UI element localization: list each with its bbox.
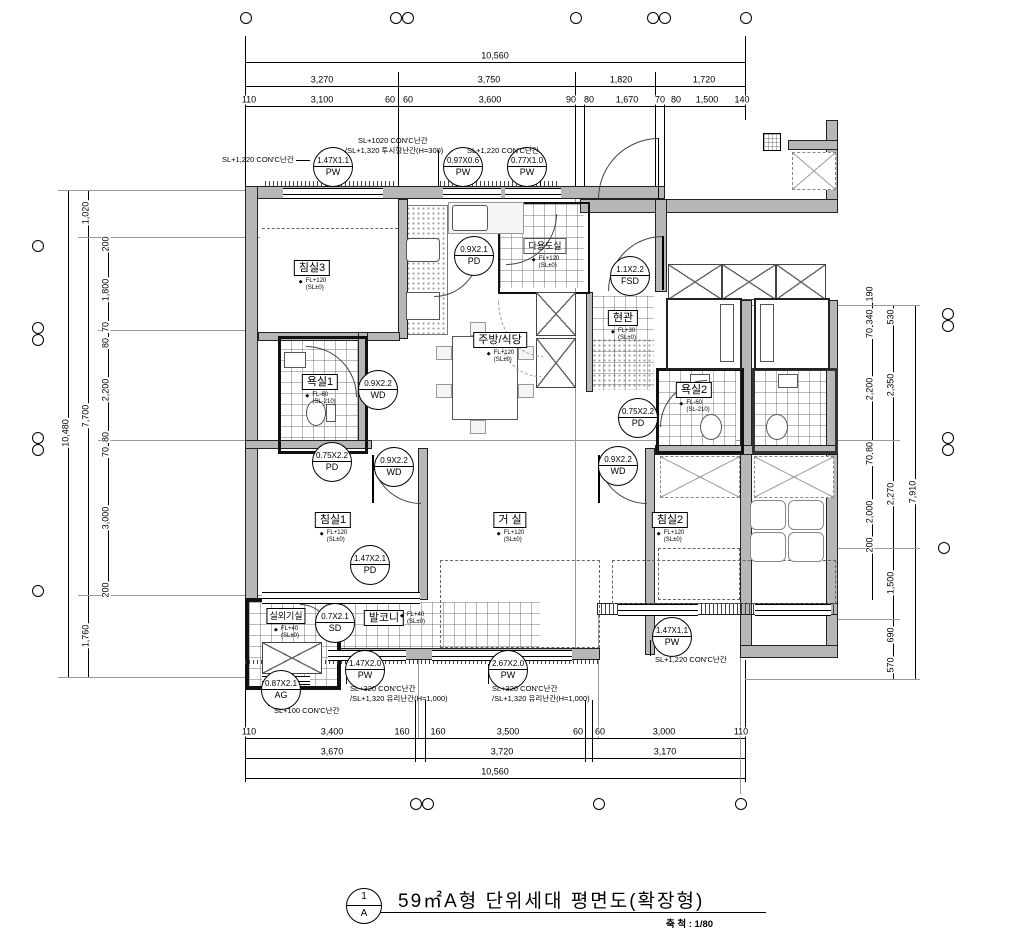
dim-text: 3,170: [653, 748, 678, 757]
wall-closet-entry: [586, 292, 593, 392]
dim-text: 60: [402, 96, 414, 105]
grid-bubble: [402, 12, 414, 24]
sofa-block: [750, 500, 786, 530]
tag-size: 0.9X2.1: [455, 245, 493, 256]
grid-bubble: [659, 12, 671, 24]
grid-bubble: [32, 334, 44, 346]
basin: [284, 352, 306, 368]
grid-bubble: [32, 432, 44, 444]
window-top-right: [505, 188, 561, 199]
tag-pw-bed2: 1.47X1.1PW: [652, 617, 692, 657]
room-label-bed1: 침실1: [315, 512, 351, 528]
level-l2: (SL±0): [494, 357, 515, 364]
tag-code: PD: [351, 565, 389, 576]
dim-text: 1,670: [615, 96, 640, 105]
tag-pd-bed1: 1.47X2.1PD: [350, 545, 390, 585]
note-railing: SL+320 CON'C난간: [350, 684, 415, 693]
tag-size: 0.97X0.6: [444, 156, 482, 167]
grid-bubble: [390, 12, 402, 24]
washer: [452, 205, 488, 231]
door-band-bed1: [262, 592, 420, 604]
dim-text: 2,200: [866, 377, 875, 402]
dim-ext: [745, 679, 920, 680]
tag-size: 0.9X2.2: [375, 456, 413, 467]
window-utility: [443, 188, 501, 199]
note-railing: SL+1,220 CON'C난간: [467, 146, 539, 155]
note-railing: SL+1,220 CON'C난간: [655, 655, 727, 664]
tag-code: PW: [489, 670, 527, 681]
closet: [722, 264, 776, 300]
wardrobe: [660, 456, 740, 498]
grid-bubble: [593, 798, 605, 810]
sofa-block: [788, 532, 824, 562]
level-l2: (SL±0): [306, 285, 327, 292]
wardrobe: [754, 456, 834, 498]
dim-ext: [425, 700, 426, 762]
room-label-living: 거 실: [493, 512, 526, 528]
window-annex: [755, 604, 831, 616]
level-l2: (SL-210): [312, 399, 335, 406]
room-label-bed2: 침실2: [652, 512, 688, 528]
room-level: FL-60(SL-210): [312, 392, 335, 405]
tag-code: AG: [262, 690, 300, 701]
note-leader: [296, 160, 310, 161]
detail-number: 1: [347, 889, 381, 906]
note-leader: [438, 150, 439, 186]
tag-size: 0.75X2.2: [313, 451, 351, 462]
wall-corridor: [580, 199, 838, 213]
dim-line: [245, 106, 745, 107]
dim-line: [88, 190, 89, 677]
dim-text: 2,200: [102, 378, 111, 403]
dim-text: 3,400: [320, 728, 345, 737]
note-railing: /SL+1,320 유리난간(H=1,000): [350, 694, 448, 703]
tag-size: 2.67X2.0: [489, 659, 527, 670]
tag-size: 1.47X1.1: [314, 156, 352, 167]
tag-size: 0.75X2.2: [619, 407, 657, 418]
room-label-entry: 현관: [608, 310, 638, 326]
level-l1: FL+40: [281, 626, 299, 633]
room-label-balcony: 발코니: [364, 610, 404, 626]
tag-fsd-entrance: 1.1X2.2FSD: [610, 256, 650, 296]
dim-text: 80: [102, 431, 111, 443]
chair: [436, 346, 452, 360]
dim-text: 1,720: [692, 76, 717, 85]
tag-size: 1.1X2.2: [611, 265, 649, 276]
dim-text: 200: [102, 581, 111, 598]
chair: [518, 384, 534, 398]
extension-line-living: [440, 560, 600, 648]
level-l1: FL+30: [618, 328, 636, 335]
window-bed3: [283, 188, 383, 199]
dim-ext: [592, 700, 593, 762]
dim-ext: [98, 440, 248, 441]
dim-text: 160: [393, 728, 410, 737]
closet: [776, 264, 826, 300]
dim-text: 60: [384, 96, 396, 105]
dim-line: [245, 738, 745, 739]
grid-bubble: [32, 585, 44, 597]
tag-code: WD: [359, 390, 397, 401]
grid-bubble: [735, 798, 747, 810]
room-label-bath2: 욕실2: [676, 382, 712, 398]
grid-bubble: [938, 542, 950, 554]
wall-corner: [788, 140, 838, 150]
door-leaf: [658, 138, 659, 200]
level-l1: FL+120: [504, 530, 525, 537]
level-l2: (SL±0): [539, 263, 560, 270]
grid-bubble: [32, 444, 44, 456]
dim-text: 3,750: [477, 76, 502, 85]
room-level: FL+120(SL±0): [664, 530, 685, 543]
note-railing: /SL+1,320 투시형난간(H=300): [345, 146, 443, 155]
tag-code: PD: [619, 418, 657, 429]
tag-wd-bed2: 0.9X2.2WD: [598, 446, 638, 486]
tag-wd-left: 0.9X2.2WD: [374, 447, 414, 487]
room-level: FL+120(SL±0): [494, 350, 515, 363]
level-l2: (SL±0): [618, 335, 636, 342]
grid-bubble: [647, 12, 659, 24]
tag-size: 0.87X2.1: [262, 679, 300, 690]
dim-text: 3,670: [320, 748, 345, 757]
room-label-kitchen: 주방/식당: [473, 332, 527, 348]
shaft: [763, 133, 781, 151]
closet: [668, 264, 722, 300]
dim-ext: [415, 700, 416, 762]
dim-text: 1,800: [102, 278, 111, 303]
dim-text: 690: [887, 626, 896, 643]
grid-bubble: [942, 308, 954, 320]
title-block: 1 A 59㎡A형 단위세대 평면도(확장형) 축 척 : 1/80: [346, 886, 766, 936]
tag-code: PW: [346, 670, 384, 681]
grid-bubble: [410, 798, 422, 810]
grid-bubble: [240, 12, 252, 24]
grid-bubble: [422, 798, 434, 810]
grid-bubble: [740, 12, 752, 24]
tag-size: 1.47X2.0: [346, 659, 384, 670]
level-l1: FL+120: [664, 530, 685, 537]
basin: [778, 374, 798, 388]
detail-sheet: A: [347, 906, 381, 921]
level-l2: (SL-210): [686, 407, 709, 414]
room-level: FL+120(SL±0): [306, 278, 327, 291]
tag-code: WD: [375, 467, 413, 478]
dim-text: 70: [866, 454, 875, 466]
extension-line-annex: [612, 560, 836, 604]
ac-unit: [262, 642, 322, 674]
level-l2: (SL±0): [327, 537, 348, 544]
tag-ag: 0.87X2.1AG: [261, 670, 301, 710]
level-l2: (SL±0): [281, 633, 299, 640]
title-underline: [380, 912, 766, 913]
room-label-bed3: 침실3: [294, 260, 330, 276]
dim-text: 3,500: [496, 728, 521, 737]
room-level: FL+30(SL±0): [618, 328, 636, 341]
bed-pillow: [760, 304, 774, 362]
dim-text: 3,600: [478, 96, 503, 105]
dim-text: 3,720: [490, 748, 515, 757]
toilet-tank: [326, 404, 336, 422]
dim-text: 60: [594, 728, 606, 737]
level-l2: (SL±0): [504, 537, 525, 544]
dim-ext: [664, 96, 665, 199]
note-leader: [650, 640, 651, 656]
tag-size: 1.47X2.1: [351, 554, 389, 565]
dim-text: 80: [670, 96, 682, 105]
dim-text: 160: [429, 728, 446, 737]
sofa-block: [788, 500, 824, 530]
tag-size: 0.7X2.1: [316, 612, 354, 623]
chair: [470, 420, 486, 434]
tag-code: PD: [455, 256, 493, 267]
wall-annex-bottom: [740, 645, 838, 658]
closet-dashed: [792, 152, 836, 190]
room-level: FL+120(SL±0): [539, 256, 560, 269]
dim-ext: [398, 72, 399, 186]
dim-text: 10,560: [480, 768, 510, 777]
dim-ext: [98, 330, 248, 331]
grid-bubble: [942, 444, 954, 456]
dim-ext: [838, 619, 900, 620]
dim-ext: [58, 190, 248, 191]
grid-bubble: [570, 12, 582, 24]
dim-text: 1,020: [82, 201, 91, 226]
tag-size: 0.9X2.2: [599, 455, 637, 466]
dim-ext: [585, 700, 586, 762]
level-l1: FL+120: [306, 278, 327, 285]
tag-code: PW: [444, 167, 482, 178]
dim-text: 80: [866, 441, 875, 453]
grid-bubble: [32, 240, 44, 252]
dim-text: 3,270: [310, 76, 335, 85]
dim-text: 190: [866, 285, 875, 302]
wall-left: [245, 186, 258, 600]
room-level: FL+40(SL±0): [407, 612, 425, 625]
dim-ext: [838, 548, 920, 549]
dim-ext: [745, 36, 746, 120]
floor-plan-sheet: 10,560 3,270 3,750 1,820 1,720 110 3,100…: [0, 0, 1022, 945]
level-l1: FL+120: [494, 350, 515, 357]
chair: [436, 384, 452, 398]
dim-text: 90: [565, 96, 577, 105]
dim-text: 570: [887, 656, 896, 673]
dim-text: 110: [241, 728, 257, 737]
detail-bubble: 1 A: [346, 888, 382, 924]
dim-line: [245, 62, 745, 63]
door-leaf: [662, 236, 664, 290]
dim-text: 200: [102, 235, 111, 252]
dim-text: 7,700: [82, 404, 91, 429]
drawing-scale: 축 척 : 1/80: [666, 916, 713, 930]
dim-text: 3,000: [652, 728, 677, 737]
dim-text: 1,820: [609, 76, 634, 85]
dim-text: 1,500: [887, 571, 896, 596]
dim-text: 110: [241, 96, 257, 105]
level-l1: FL+120: [327, 530, 348, 537]
dim-text: 70: [866, 327, 875, 339]
dim-ext: [584, 96, 585, 199]
dim-text: 60: [572, 728, 584, 737]
dim-text: 70: [102, 446, 111, 458]
dim-text: 7,910: [909, 480, 918, 505]
room-level: FL+40(SL±0): [281, 626, 299, 639]
dim-text: 1,500: [695, 96, 720, 105]
level-l1: FL+40: [407, 612, 425, 619]
dim-text: 140: [733, 96, 750, 105]
tag-size: 0.9X2.2: [359, 379, 397, 390]
dim-text: 80: [583, 96, 595, 105]
dim-text: 80: [102, 337, 111, 349]
room-label-bath1: 욕실1: [302, 374, 338, 390]
dim-text: 110: [733, 728, 749, 737]
room-level: FL+120(SL±0): [327, 530, 348, 543]
tag-code: PD: [313, 462, 351, 473]
dim-ext: [575, 72, 576, 199]
dim-text: 3,000: [102, 506, 111, 531]
room-level: FL-60(SL-210): [686, 400, 709, 413]
tag-pd-utility: 0.9X2.1PD: [454, 236, 494, 276]
toilet: [766, 414, 788, 440]
bed-pillow: [720, 304, 734, 362]
dim-text: 10,480: [62, 418, 71, 448]
level-l2: (SL±0): [664, 537, 685, 544]
dim-line: [245, 758, 745, 759]
room-label-utility: 다용도실: [523, 238, 566, 254]
door-arc-corridor: [598, 138, 659, 199]
dim-line: [245, 86, 745, 87]
window-bed2: [618, 604, 698, 616]
note-railing: SL+100 CON'C난간: [274, 706, 339, 715]
tag-code: WD: [599, 466, 637, 477]
note-railing: /SL+1,320 유리난간(H=1,000): [492, 694, 590, 703]
tag-wd-bath1: 0.9X2.2WD: [358, 370, 398, 410]
grid-bubble: [942, 320, 954, 332]
grid-bubble: [32, 322, 44, 334]
note-railing: SL+1,220 CON'C난간: [222, 155, 294, 164]
dim-text: 530: [887, 308, 896, 325]
tag-sd-ac: 0.7X2.1SD: [315, 603, 355, 643]
tag-code: PW: [314, 167, 352, 178]
tag-code: SD: [316, 623, 354, 634]
note-railing: SL+320 CON'C난간: [492, 684, 557, 693]
tag-size: 1.47X1.1: [653, 626, 691, 637]
dim-line: [245, 778, 745, 779]
dim-text: 3,100: [310, 96, 335, 105]
tag-pd-bath2: 0.75X2.2PD: [618, 398, 658, 438]
dim-text: 2,000: [866, 500, 875, 525]
tag-code: PW: [508, 167, 546, 178]
dim-text: 200: [866, 536, 875, 553]
level-l1: FL+120: [539, 256, 560, 263]
dim-text: 70: [654, 96, 666, 105]
grid-bubble: [942, 432, 954, 444]
room-level: FL+120(SL±0): [504, 530, 525, 543]
dim-text: 2,270: [887, 482, 896, 507]
dim-text: 1,760: [82, 624, 91, 649]
dim-text: 2,350: [887, 373, 896, 398]
dim-text: 10,560: [480, 52, 510, 61]
drawing-title: 59㎡A형 단위세대 평면도(확장형): [398, 886, 704, 913]
note-railing: SL+1020 CON'C난간: [358, 136, 428, 145]
tag-code: FSD: [611, 276, 649, 287]
room-label-ac-room: 실외기실: [266, 608, 305, 624]
tag-size: 0.77X1.0: [508, 156, 546, 167]
tag-pd-left: 0.75X2.2PD: [312, 442, 352, 482]
extension-line-bed3: [262, 228, 398, 229]
entry-stone: [592, 338, 654, 390]
tag-code: PW: [653, 637, 691, 648]
level-l2: (SL±0): [407, 619, 425, 626]
sofa-block: [750, 532, 786, 562]
dim-text: 70: [102, 321, 111, 333]
dim-text: 340: [866, 308, 875, 325]
